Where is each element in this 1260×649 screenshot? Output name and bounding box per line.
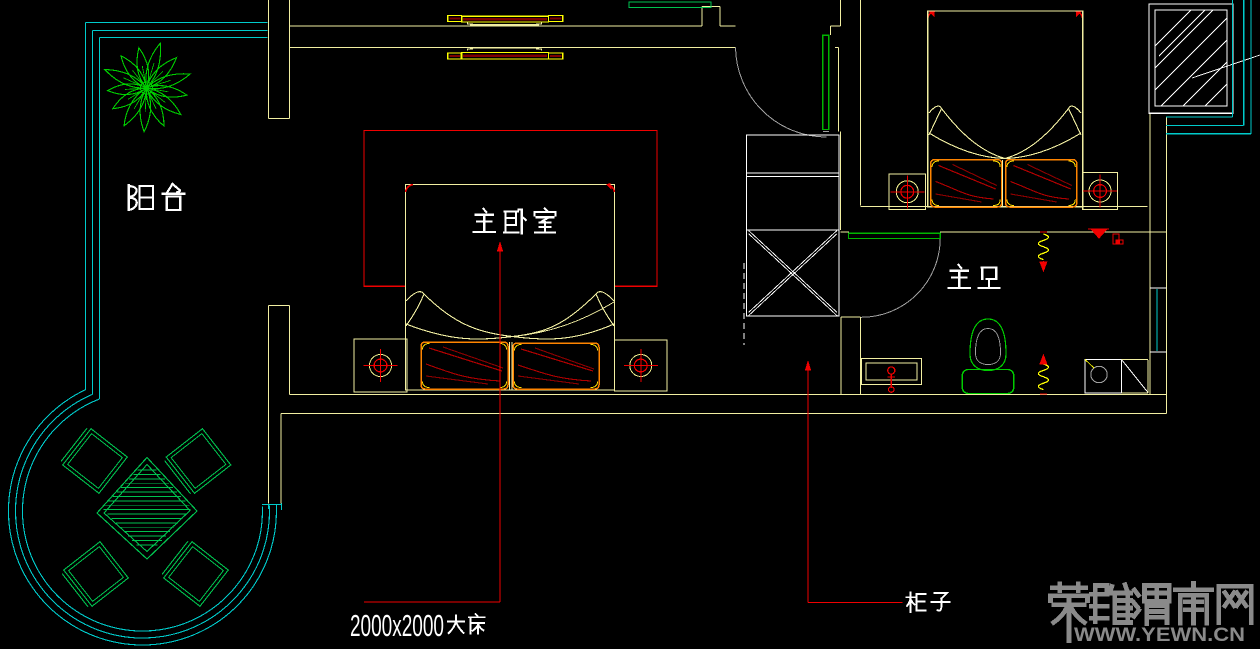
- svg-text:2000x2000: 2000x2000: [350, 608, 444, 643]
- svg-text:WWW.YEWN.CN: WWW.YEWN.CN: [1074, 625, 1245, 646]
